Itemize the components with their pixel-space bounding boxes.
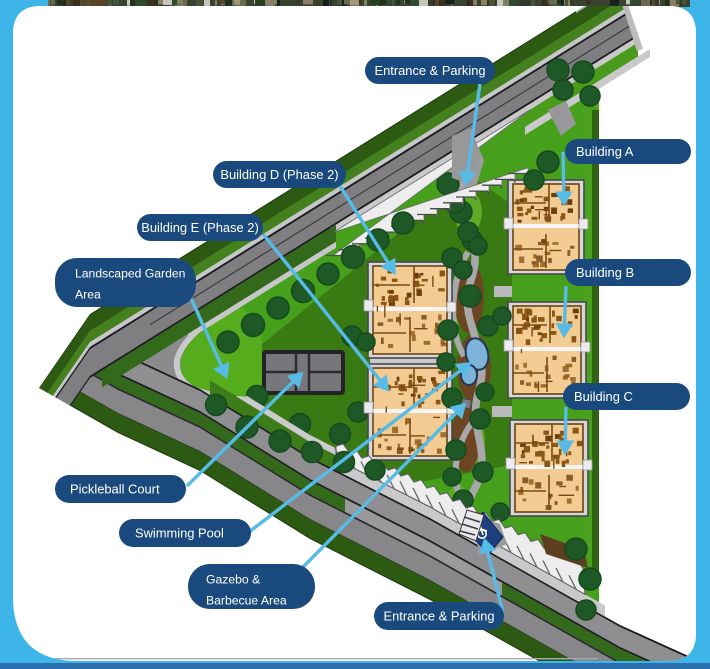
svg-text:Entrance & Parking: Entrance & Parking bbox=[383, 609, 494, 624]
svg-text:Landscaped Garden: Landscaped Garden bbox=[75, 267, 185, 281]
svg-text:Building D (Phase 2): Building D (Phase 2) bbox=[220, 167, 338, 182]
svg-text:Building E (Phase 2): Building E (Phase 2) bbox=[141, 220, 259, 235]
svg-text:Gazebo &: Gazebo & bbox=[206, 573, 260, 587]
svg-text:Building B: Building B bbox=[576, 265, 634, 280]
svg-text:Barbecue Area: Barbecue Area bbox=[206, 594, 287, 608]
svg-text:Area: Area bbox=[75, 288, 101, 302]
svg-text:Building C: Building C bbox=[574, 389, 633, 404]
svg-text:Pickleball Court: Pickleball Court bbox=[70, 482, 160, 497]
svg-text:Building A: Building A bbox=[576, 144, 634, 159]
svg-text:Swimming Pool: Swimming Pool bbox=[135, 526, 224, 541]
svg-text:Entrance & Parking: Entrance & Parking bbox=[374, 63, 485, 78]
